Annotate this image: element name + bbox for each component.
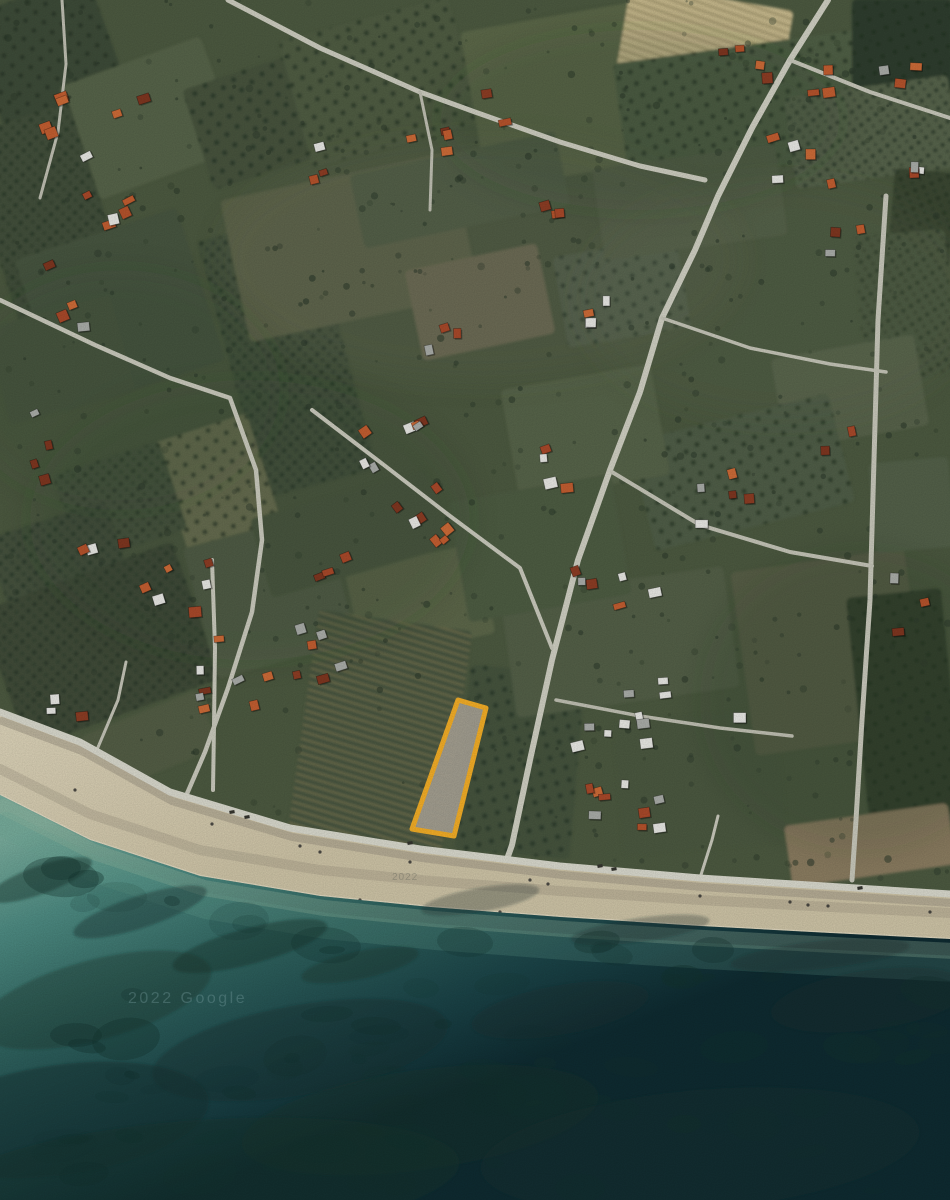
satellite-map: 2022 Google 2022 [0,0,950,1200]
photo-grain-overlay [0,0,950,1200]
satellite-canvas: 2022 Google 2022 [0,0,950,1200]
